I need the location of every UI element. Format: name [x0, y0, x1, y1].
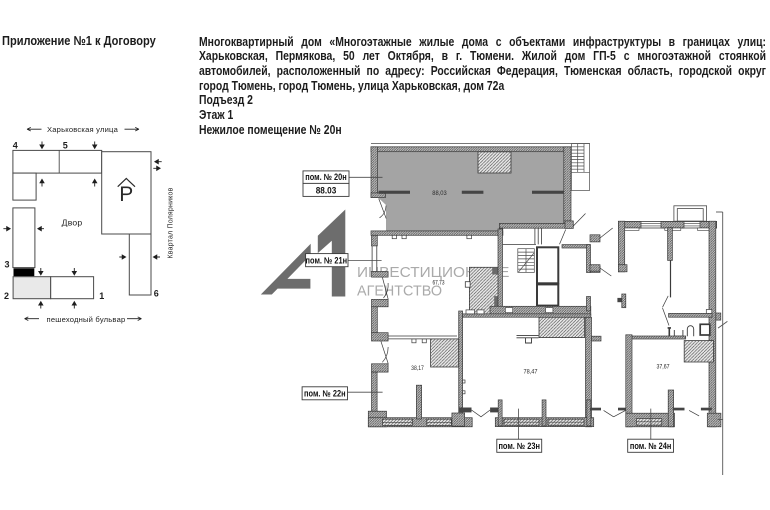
svg-text:38,17: 38,17 — [411, 365, 424, 372]
svg-text:Харьковская улица: Харьковская улица — [47, 125, 119, 134]
svg-text:78,47: 78,47 — [524, 369, 538, 376]
svg-text:P: P — [119, 183, 133, 206]
svg-text:Двор: Двор — [62, 218, 83, 228]
svg-text:пом. № 21н: пом. № 21н — [306, 256, 348, 266]
svg-text:3: 3 — [4, 260, 9, 270]
svg-text:6: 6 — [154, 289, 159, 299]
svg-text:67,73: 67,73 — [433, 280, 445, 287]
svg-text:пом. № 23н: пом. № 23н — [498, 441, 540, 451]
svg-text:2: 2 — [4, 291, 9, 301]
svg-text:1: 1 — [99, 291, 104, 301]
svg-text:пом. № 24н: пом. № 24н — [630, 441, 672, 451]
svg-text:4: 4 — [13, 141, 18, 151]
svg-text:АГЕНТСТВО: АГЕНТСТВО — [357, 283, 442, 300]
svg-text:пешеходный бульвар: пешеходный бульвар — [47, 315, 126, 324]
svg-text:88.03: 88.03 — [316, 185, 337, 196]
svg-text:88,03: 88,03 — [432, 190, 447, 197]
svg-text:Квартал Полярников: Квартал Полярников — [168, 187, 175, 258]
svg-text:пом. № 22н: пом. № 22н — [304, 388, 346, 398]
svg-text:37,67: 37,67 — [657, 364, 670, 371]
svg-text:5: 5 — [63, 141, 68, 151]
svg-text:пом. № 20н: пом. № 20н — [305, 172, 347, 182]
